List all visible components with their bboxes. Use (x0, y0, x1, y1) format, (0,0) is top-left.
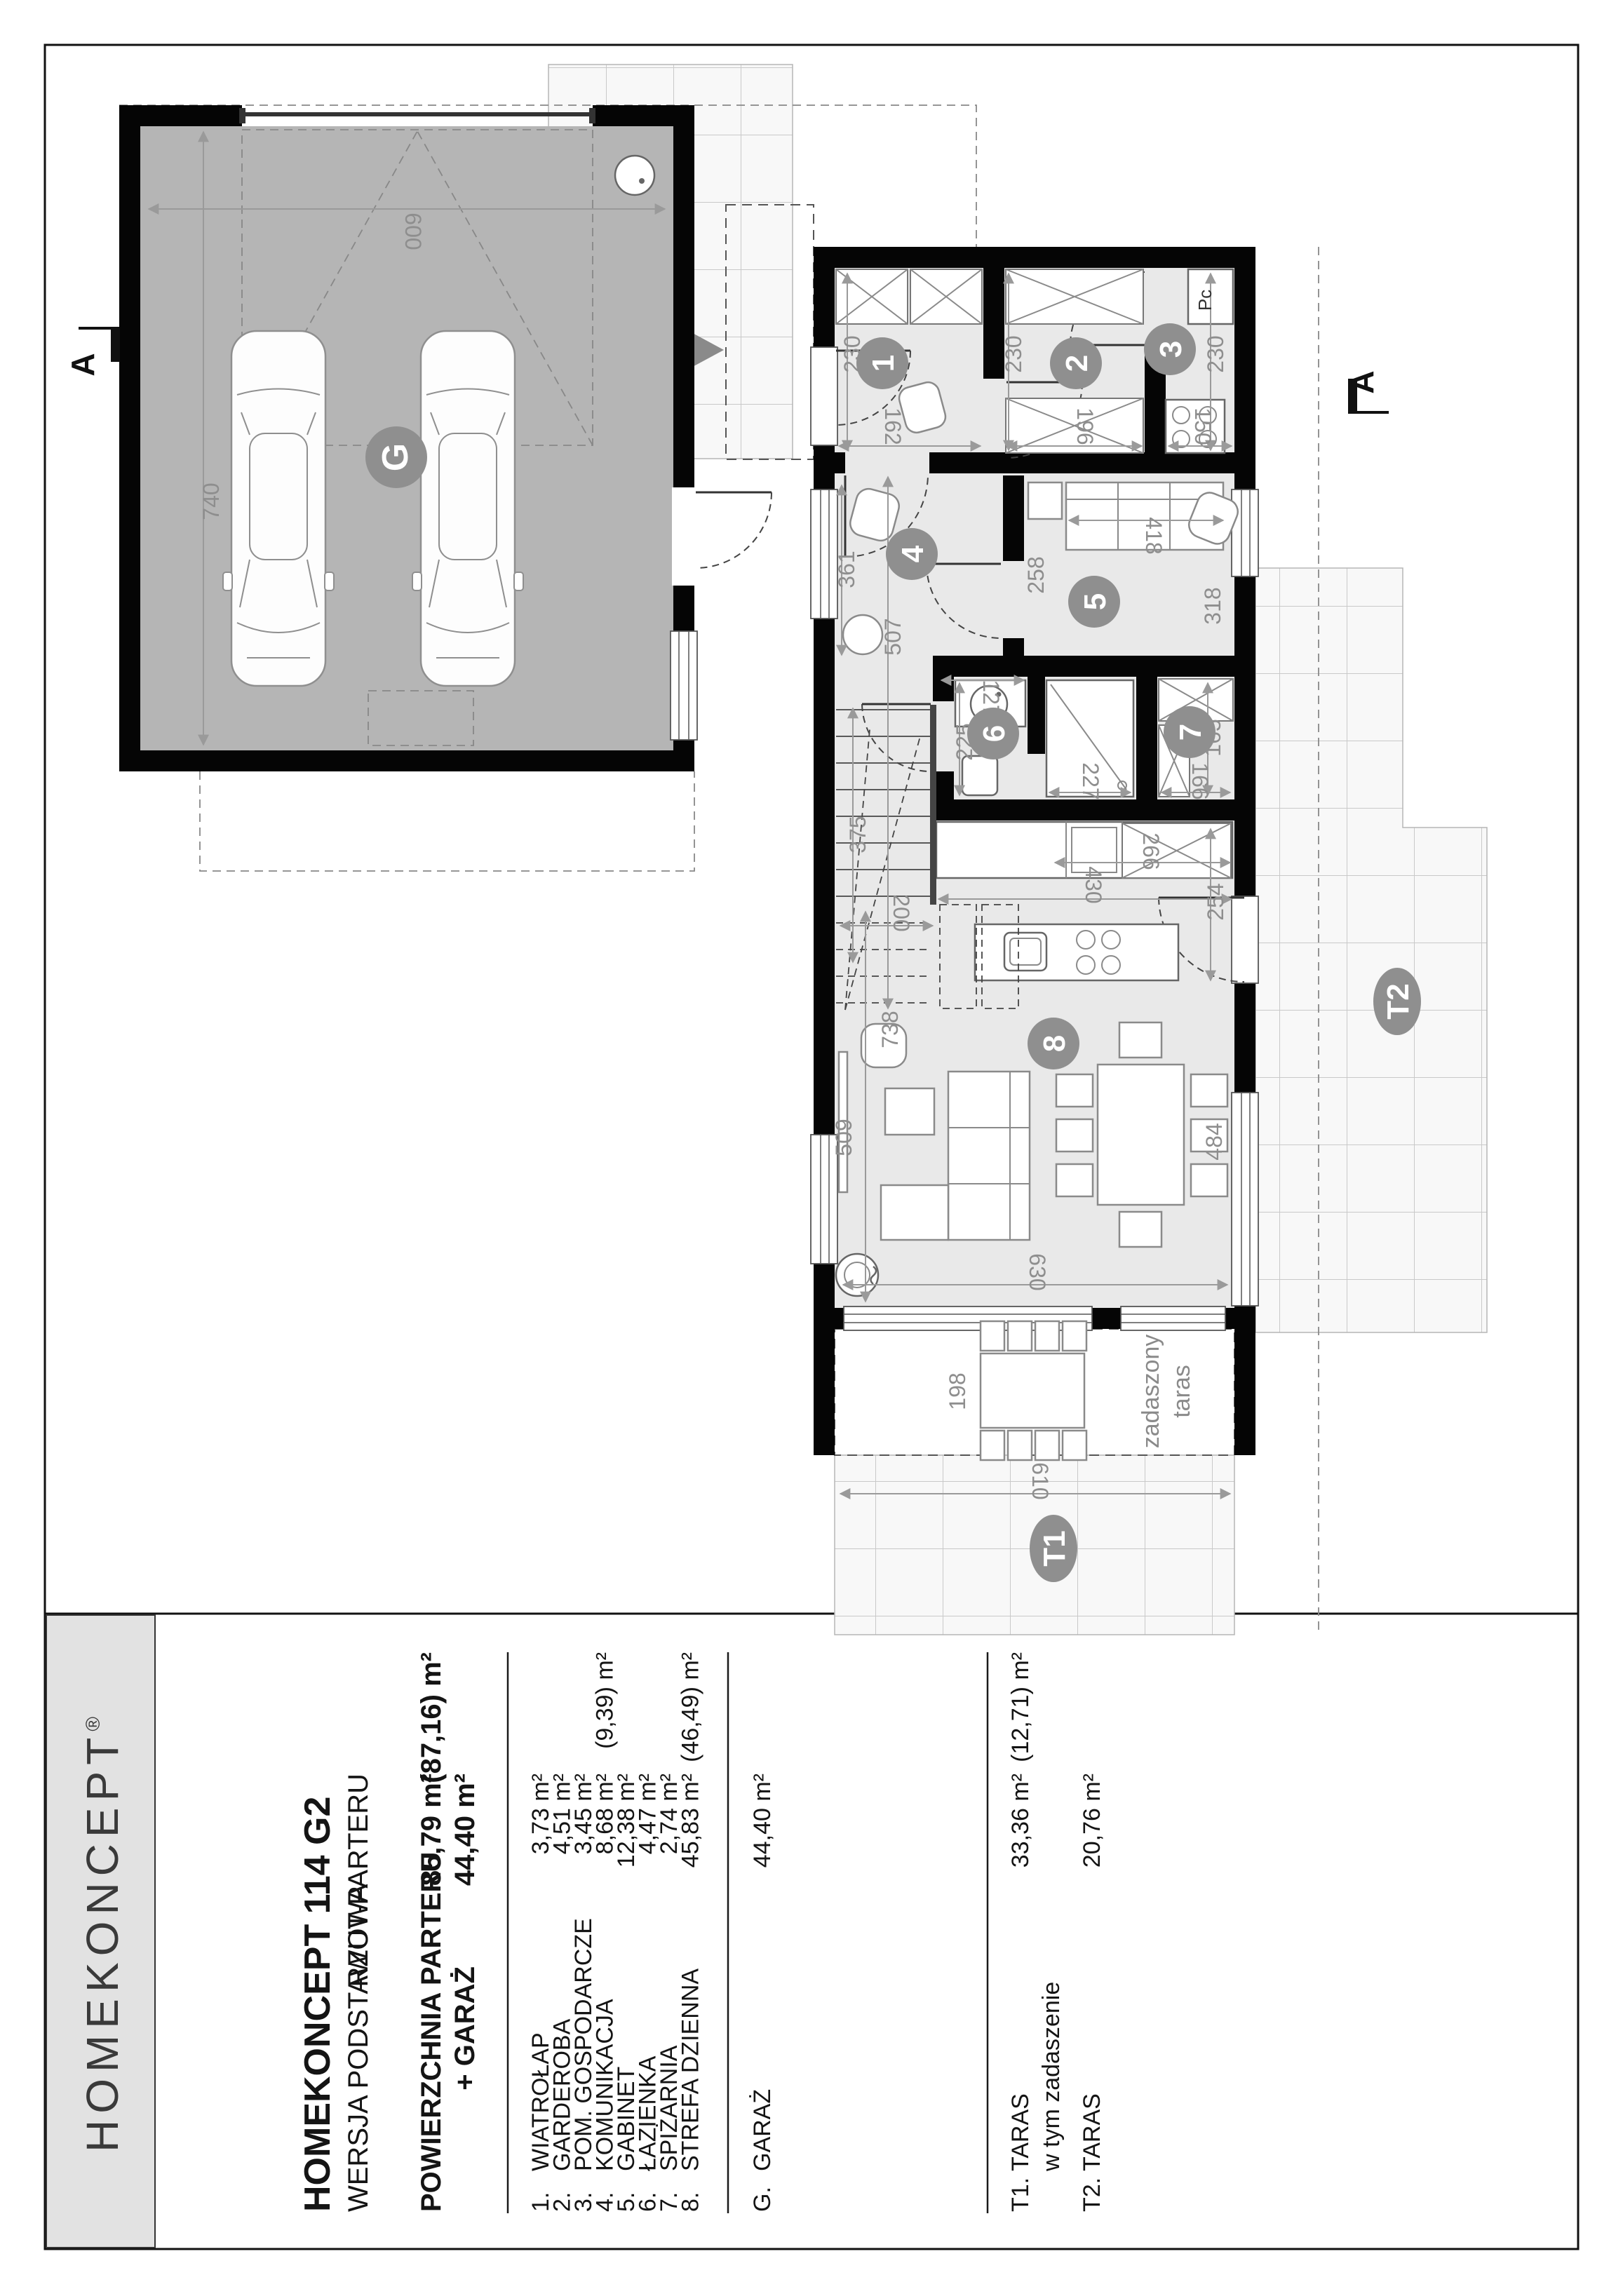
boiler-label: Pc (1194, 290, 1215, 311)
car-left (223, 331, 334, 686)
roof-outline-garage (200, 771, 694, 871)
t1-row-paren: (12,71) m² (1007, 1652, 1034, 1762)
legend-rotated: HOMEKONCEPT® HOMEKONCEPT 114 G2 WERSJA P… (77, 1652, 1105, 2213)
dimension-label: 418 (1141, 517, 1166, 554)
version-value: RZUT PARTERU (343, 1774, 374, 1987)
dimension-label: 200 (889, 894, 914, 931)
t1-note: w tym zadaszenie (1038, 1982, 1065, 2172)
garage (119, 105, 772, 771)
dimension-label: 230 (1203, 335, 1228, 372)
car-right (412, 331, 523, 686)
badge-label-5: 5 (1078, 593, 1112, 610)
dimension-label: 162 (880, 407, 905, 445)
section-letter-left: A (65, 353, 101, 376)
dimension-label: 230 (1001, 335, 1026, 372)
dimension-label: 509 (831, 1119, 856, 1156)
badge-label-6: 6 (977, 725, 1011, 742)
dimension-label: 484 (1201, 1123, 1227, 1160)
t2-row-area: 20,76 m² (1079, 1774, 1105, 1868)
garage-window (671, 631, 697, 740)
badge-label-7: 7 (1173, 724, 1208, 741)
dimension-label: 227 (1078, 762, 1103, 799)
badge-label-T1: T1 (1037, 1530, 1072, 1566)
section-marker-right: A (1344, 370, 1389, 412)
dimension-label: 266 (1138, 832, 1164, 870)
badge-label-T2: T2 (1381, 983, 1415, 1019)
t1-row-name: TARAS (1007, 2093, 1034, 2171)
badge-label-G: G (375, 443, 416, 471)
badge-label-3: 3 (1154, 341, 1188, 358)
t1-row-area: 33,36 m² (1007, 1774, 1034, 1868)
t2-row-no: T2. (1079, 2177, 1105, 2212)
garage-drain-icon (615, 156, 654, 195)
section-marker-left: A (65, 328, 120, 377)
dimension-label: 630 (1025, 1253, 1050, 1290)
t2-row-name: TARAS (1079, 2093, 1105, 2171)
room-row-8-name: STREFA DZIENNA (678, 1969, 704, 2171)
garage-side-door-opening (672, 487, 696, 586)
area-value: 85,79 m² (416, 1774, 447, 1886)
dimension-label: 166 (1187, 762, 1213, 799)
room-row-8-area: 45,83 m² (678, 1774, 704, 1868)
legend-block: HOMEKONCEPT® HOMEKONCEPT 114 G2 WERSJA P… (46, 1615, 1105, 2248)
dimension-label: 196 (1072, 407, 1098, 445)
garage-area-label: + GARAŻ (450, 1966, 480, 2091)
brand-logo: HOMEKONCEPT® (77, 1710, 128, 2152)
dimension-label: 375 (845, 816, 870, 853)
dimension-label: 254 (1203, 883, 1228, 920)
dimension-label: 430 (1081, 866, 1106, 903)
room-row-8-paren: (46,49) m² (678, 1652, 704, 1762)
garage-area-value: 44,40 m² (450, 1774, 480, 1886)
area-label: POWIERZCHNIA PARTERU (416, 1852, 447, 2212)
covered-terrace-label-1: zadaszony (1138, 1335, 1164, 1449)
legend-room-rows: 1.WIATROŁAP3,73 m²2.GARDEROBA4,51 m²3.PO… (527, 1652, 1105, 2212)
room-row-8-no: 8. (678, 2192, 704, 2212)
terrace-t2-tiles (1255, 568, 1487, 1332)
dimension-label: 610 (1028, 1462, 1053, 1499)
garage-door (242, 112, 593, 116)
badge-label-1: 1 (866, 355, 901, 372)
kitchen-island (975, 924, 1178, 980)
garage-row-area: 44,40 m² (749, 1774, 776, 1868)
corridor-table (843, 615, 882, 654)
dimension-label: 258 (1023, 556, 1049, 593)
section-letter-right: A (1344, 370, 1380, 393)
badge-label-4: 4 (896, 545, 930, 562)
dimension-label: 150 (1190, 407, 1215, 445)
garage-row-no: G. (749, 2187, 776, 2212)
t1-row-no: T1. (1007, 2177, 1034, 2212)
area-paren: (87,16) m² (416, 1652, 447, 1783)
dimension-label: 318 (1200, 587, 1225, 624)
badge-label-8: 8 (1037, 1035, 1072, 1052)
dimension-label: 600 (400, 212, 426, 250)
floor-plan-sheet: 6007402301622301962301503615074182583182… (0, 0, 1623, 2296)
dimension-label: 507 (880, 618, 905, 655)
dimension-label: 740 (198, 482, 224, 520)
badge-label-2: 2 (1060, 355, 1094, 372)
garage-row-name: GARAŻ (749, 2089, 776, 2171)
room-row-4-paren: (9,39) m² (592, 1652, 619, 1749)
plan-svg: 6007402301622301962301503615074182583182… (0, 0, 1623, 2296)
terrace-dining (981, 1321, 1086, 1460)
dimension-label: 198 (945, 1372, 970, 1410)
plan-title: HOMEKONCEPT 114 G2 (297, 1797, 338, 2212)
dimension-label: 361 (834, 551, 859, 588)
dimension-label: 738 (877, 1011, 903, 1048)
covered-terrace-label-2: taras (1169, 1365, 1195, 1418)
